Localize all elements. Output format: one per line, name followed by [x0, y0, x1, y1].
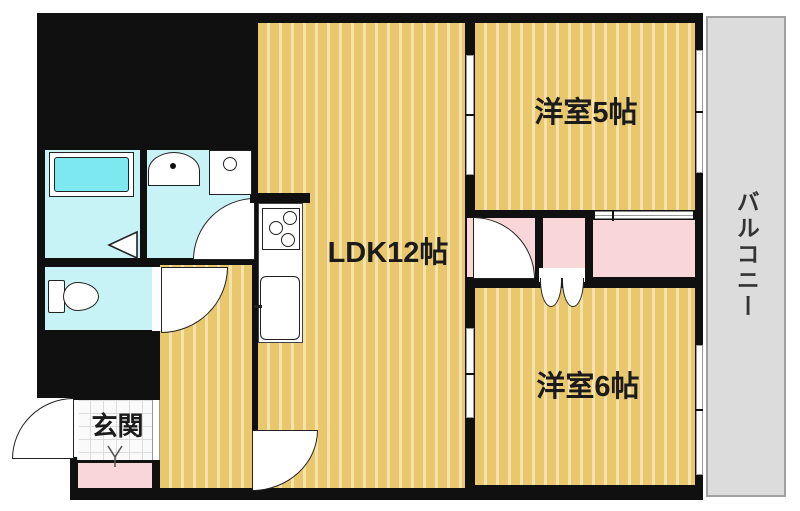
washbasin: [148, 152, 200, 186]
washbasin-drain: [170, 163, 176, 169]
kitchen-tap: [254, 305, 262, 308]
entrance-label: 玄関: [75, 412, 160, 441]
bedroom5-label: 洋室5帖: [486, 98, 686, 130]
balcony-label: バルコニー: [733, 190, 758, 320]
entrance-step-mark: [104, 444, 128, 470]
window-balcony-bedroom6: [696, 345, 703, 475]
ldk-label: LDK12帖: [288, 238, 488, 270]
bathroom-door-mark: [105, 228, 141, 262]
bedroom6-label: 洋室6帖: [488, 372, 688, 404]
closet-large: [593, 220, 695, 277]
sliding-door: [595, 211, 693, 219]
window-inner-bottom: [466, 328, 474, 418]
window-balcony-bedroom5: [696, 50, 703, 173]
kitchen-wall-stub: [250, 193, 310, 203]
bathtub: [49, 152, 134, 197]
kitchen-sink: [260, 276, 300, 340]
window-inner-top: [466, 55, 474, 175]
entrance-door-arc: [12, 398, 74, 459]
floor-plan: バルコニー: [0, 0, 800, 511]
washing-machine-pan: [209, 150, 252, 195]
